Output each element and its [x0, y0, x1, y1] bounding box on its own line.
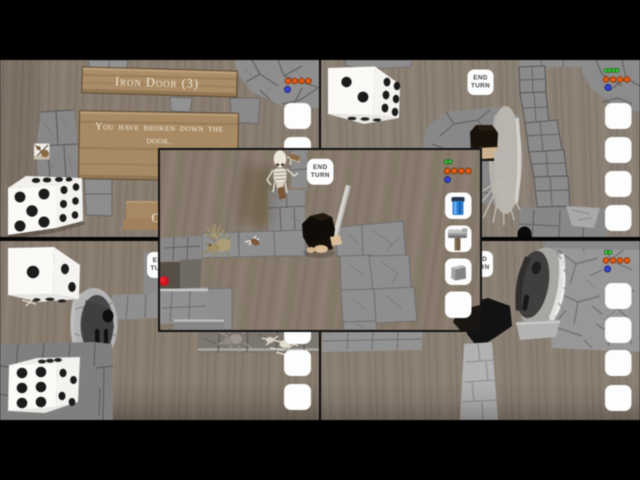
svg-text:door.: door.	[146, 135, 171, 146]
svg-text:END: END	[313, 164, 328, 171]
svg-text:END: END	[473, 75, 488, 82]
svg-text:TURN: TURN	[311, 172, 330, 179]
svg-text:You have broken down the: You have broken down the	[95, 121, 224, 134]
svg-text:Iron Door (3): Iron Door (3)	[115, 74, 199, 90]
svg-text:TURN: TURN	[471, 83, 490, 90]
